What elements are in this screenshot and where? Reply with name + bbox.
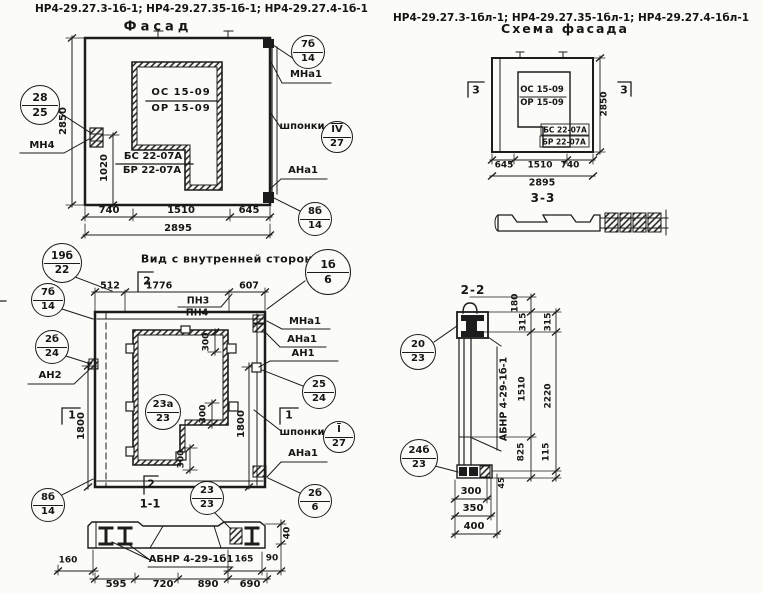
inner-dim-300-mid: 300 xyxy=(200,405,209,424)
callout-20-23: 20 23 xyxy=(400,334,436,370)
schema-dim-1510: 1510 xyxy=(527,162,552,171)
inner-view-title: Вид с внутренней стороны xyxy=(141,254,323,265)
callout-detail-number: 1б xyxy=(307,258,349,273)
schema-dim-740: 740 xyxy=(561,162,580,171)
callout-IV-27: IV 27 xyxy=(321,121,353,153)
inner-dim-1800-right: 1800 xyxy=(237,410,247,438)
callout-sheet-number: 14 xyxy=(301,53,315,65)
callout-detail-number: 7б xyxy=(33,287,64,301)
callout-detail-number: 2б xyxy=(300,488,331,502)
callout-sheet-number: 23 xyxy=(411,353,425,365)
callout-sheet-number: 6 xyxy=(312,502,319,514)
callout-sheet-number: 6 xyxy=(324,273,332,286)
sec11-dim-165: 165 xyxy=(235,556,254,565)
facade-title: Фасад xyxy=(124,21,193,34)
facade-dim-2850: 2850 xyxy=(59,107,69,135)
schema-title: Схема фасада xyxy=(501,23,629,36)
sec22-dim-400: 400 xyxy=(464,522,485,532)
callout-24b-23: 24б 23 xyxy=(400,439,438,477)
inner-section-marker-2-bottom: 2 xyxy=(147,479,155,490)
callout-sheet-number: 14 xyxy=(308,220,322,232)
callout-sheet-number: 23 xyxy=(156,413,170,425)
callout-7b-14-inner: 7б 14 xyxy=(31,283,65,317)
sec22-dim-45: 45 xyxy=(498,477,506,488)
inner-label-shponki: шпонки xyxy=(279,428,324,438)
inner-label-ana1: АНа1 xyxy=(287,335,317,345)
callout-sheet-number: 23 xyxy=(200,499,214,511)
facade-dim-1020: 1020 xyxy=(100,154,110,182)
facade-dim-645: 645 xyxy=(239,206,260,216)
facade-label-mn4: МН4 xyxy=(29,141,54,151)
schema-section-marker-left: 3 xyxy=(472,85,480,96)
sec11-dim-720: 720 xyxy=(153,580,174,590)
drawing-linework xyxy=(0,0,763,593)
sec11-dim-40: 40 xyxy=(284,527,293,540)
sec22-dim-315-b: 315 xyxy=(545,313,554,332)
callout-8b-14-inner: 8б 14 xyxy=(31,488,65,522)
sec22-dim-825: 825 xyxy=(518,443,527,462)
sec22-dim-2220: 2220 xyxy=(545,383,554,408)
sec22-dim-350: 350 xyxy=(463,504,484,514)
sec11-dim-690: 690 xyxy=(240,580,261,590)
callout-1b-6: 1б 6 xyxy=(305,249,351,295)
callout-detail-number: 7б xyxy=(293,39,324,53)
callout-I-27: I 27 xyxy=(323,421,355,453)
callout-sheet-number: 27 xyxy=(332,438,346,450)
callout-detail-number: 25 xyxy=(304,379,335,393)
callout-sheet-number: 23 xyxy=(412,459,426,471)
sec11-dim-890: 890 xyxy=(198,580,219,590)
sec22-dim-180: 180 xyxy=(512,294,521,313)
callout-28-25: 28 25 xyxy=(20,85,60,125)
schema-section-label-3-3: 3-3 xyxy=(531,192,556,204)
inner-section-marker-2-top: 2 xyxy=(143,276,151,287)
facade-dim-2895: 2895 xyxy=(164,224,192,234)
schema-sill-mark-bottom: БР 22-07А xyxy=(542,138,586,146)
inner-section-marker-1-right: 1 xyxy=(285,410,293,421)
inner-label-mna1: МНа1 xyxy=(289,317,321,327)
callout-detail-number: 23 xyxy=(192,485,223,499)
sec11-dim-90: 90 xyxy=(266,555,279,564)
facade-label-shponki: шпонки xyxy=(279,122,324,132)
inner-section-label-1-1: 1-1 xyxy=(140,498,161,510)
callout-detail-number: I xyxy=(325,424,354,438)
callout-19b-22: 19б 22 xyxy=(42,243,82,283)
facade-window-mark-bottom: ОР 15-09 xyxy=(151,104,210,114)
callout-detail-number: IV xyxy=(323,124,352,138)
sec22-dim-1510: 1510 xyxy=(519,376,528,401)
schema-window-mark-top: ОС 15-09 xyxy=(520,86,564,95)
sec22-panel-mark: АБНР 4-29-1б-1 xyxy=(499,357,509,441)
facade-dim-1510: 1510 xyxy=(167,206,195,216)
callout-23-23: 23 23 xyxy=(190,481,224,515)
callout-sheet-number: 27 xyxy=(330,138,344,150)
sec22-title: 2-2 xyxy=(461,284,486,296)
inner-label-ana1-b: АНа1 xyxy=(288,449,318,459)
inner-view-linework xyxy=(28,272,338,529)
callout-sheet-number: 14 xyxy=(41,506,55,518)
inner-section-marker-1-left: 1 xyxy=(68,410,76,421)
sec22-dim-115: 115 xyxy=(543,443,552,462)
callout-7b-14: 7б 14 xyxy=(291,35,325,69)
schema-dim-2895: 2895 xyxy=(529,178,555,188)
facade-label-ana1: АНа1 xyxy=(288,166,318,176)
facade-sill-mark-top: БС 22-07А xyxy=(124,152,182,162)
inner-dim-1800-left: 1800 xyxy=(77,412,87,440)
inner-label-an1: АН1 xyxy=(291,349,314,359)
inner-dim-512: 512 xyxy=(100,281,120,291)
callout-25-24: 25 24 xyxy=(302,375,336,409)
inner-dim-607: 607 xyxy=(239,281,259,291)
callout-detail-number: 23а xyxy=(147,399,180,413)
callout-detail-number: 8б xyxy=(300,206,331,220)
inner-label-pn3: ПН3 xyxy=(187,296,210,306)
section-1-1-linework xyxy=(54,520,286,583)
facade-dim-740: 740 xyxy=(99,206,120,216)
sec11-dim-595: 595 xyxy=(106,580,127,590)
header-left-marks: НР4-29.27.3-1б-1; НР4-29.27.35-1б-1; НР4… xyxy=(35,3,368,15)
callout-sheet-number: 24 xyxy=(312,393,326,405)
callout-detail-number: 28 xyxy=(22,91,58,106)
sec22-dim-300: 300 xyxy=(461,487,482,497)
schema-section-marker-right: 3 xyxy=(620,85,628,96)
facade-label-mna1: МНа1 xyxy=(290,70,322,80)
callout-sheet-number: 25 xyxy=(32,106,47,119)
schema-dim-645: 645 xyxy=(495,162,514,171)
callout-2b-6: 2б 6 xyxy=(298,484,332,518)
facade-window-mark-top: ОС 15-09 xyxy=(151,88,210,98)
facade-sill-mark-bottom: БР 22-07А xyxy=(123,166,181,176)
section-3-3-profile xyxy=(495,210,668,235)
callout-sheet-number: 14 xyxy=(41,301,55,313)
callout-detail-number: 19б xyxy=(44,250,80,264)
callout-detail-number: 20 xyxy=(402,339,435,353)
sec22-dim-315-a: 315 xyxy=(520,313,529,332)
inner-dim-300-bottom: 300 xyxy=(178,450,187,469)
callout-sheet-number: 24 xyxy=(45,348,59,360)
inner-label-an2: АН2 xyxy=(38,371,61,381)
schema-window-mark-bottom: ОР 15-09 xyxy=(520,99,564,108)
schema-dim-2850: 2850 xyxy=(601,91,610,116)
sec11-panel-mark: АБНР 4-29-1б1 xyxy=(149,555,234,565)
callout-detail-number: 24б xyxy=(402,445,437,459)
callout-2b-24: 2б 24 xyxy=(35,330,69,364)
blueprint-sheet: НР4-29.27.3-1б-1; НР4-29.27.35-1б-1; НР4… xyxy=(0,0,763,593)
callout-detail-number: 2б xyxy=(37,334,68,348)
callout-detail-number: 8б xyxy=(33,492,64,506)
callout-sheet-number: 22 xyxy=(55,264,70,277)
schema-sill-mark-top: БС 22-07А xyxy=(543,126,587,134)
sec11-dim-160: 160 xyxy=(59,557,78,566)
callout-23a-23: 23а 23 xyxy=(145,394,181,430)
callout-8b-14: 8б 14 xyxy=(298,202,332,236)
inner-dim-300-top: 300 xyxy=(203,333,212,352)
inner-label-pn4: ПН4 xyxy=(186,308,209,318)
